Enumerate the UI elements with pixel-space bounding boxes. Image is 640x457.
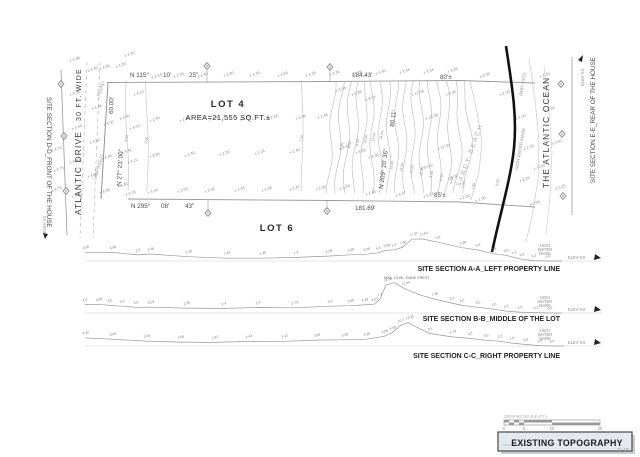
spot-elevation: x 4.40 xyxy=(223,70,235,78)
profile-elevation-label: 1.45 xyxy=(259,251,267,257)
profile-elevation-label: 2.47 xyxy=(281,334,289,340)
profile-elevation-label: 5.56 xyxy=(383,243,391,249)
spot-elevation: x 4.39 xyxy=(249,70,261,78)
profile-elevation-label: 5.2 xyxy=(449,296,455,301)
west-dimension: 60.00' xyxy=(108,97,116,114)
contour-label: 2.00 xyxy=(299,134,304,142)
section-profile-line xyxy=(85,283,562,313)
profile-elevation-label: 2.60 xyxy=(143,333,151,339)
section-aa-label: SITE SECTION A-A_LEFT PROPERTY LINE xyxy=(418,266,561,273)
monument-icon xyxy=(204,63,210,70)
scale-bar-segment xyxy=(524,420,552,423)
contour-line xyxy=(352,81,358,193)
profile-elevation-label: 4.79 xyxy=(449,329,457,335)
profile-elevation-label: 3.28 xyxy=(347,247,355,253)
spot-elevation: x 4.28 xyxy=(447,66,459,74)
monument-icon xyxy=(58,81,64,88)
east-dimension: 80.11' xyxy=(389,110,398,127)
north-bearing-min: 10' xyxy=(163,72,171,79)
spot-elevation: x 0.50 xyxy=(551,138,563,146)
spot-elevation: x 3.02 xyxy=(204,186,216,194)
spot-elevation: x 4.38 xyxy=(305,70,317,78)
profile-elevation-label: 2.4 xyxy=(221,301,227,306)
profile-elevation-label: 3.55 xyxy=(363,247,371,253)
contour-line xyxy=(146,81,149,191)
datum-arrow-icon xyxy=(594,339,601,345)
spot-elevation: x 4.44 xyxy=(399,67,411,75)
spot-elevation: x 12.08 xyxy=(411,88,425,97)
street-width: 30 FT. WIDE xyxy=(76,68,83,121)
profile-elevation-label: 0.0 xyxy=(547,306,553,311)
profile-elevation-label: 2.5 xyxy=(497,334,503,339)
profile-elevation-label: 4.50 xyxy=(109,245,117,251)
contour-line xyxy=(403,81,407,193)
spot-elevation: x 3.05 xyxy=(177,186,189,194)
spot-elevation: x 4.40 xyxy=(375,68,387,76)
north-bearing-sec: 25" xyxy=(189,72,198,79)
monument-icon xyxy=(324,208,330,215)
profile-elevation-label: 7.38 xyxy=(431,291,439,297)
contour-label: 0.00 xyxy=(495,178,500,186)
profile-elevation-label: 4.28 xyxy=(361,297,369,303)
spot-elevation: x 4.38 xyxy=(173,71,185,79)
scale-bar-segment xyxy=(519,423,524,426)
section-dd-cut-line xyxy=(61,70,67,235)
title-block: GRAPHIC SCALE (FT.) 0 5 10 20 EXISTING T… xyxy=(498,414,635,454)
spot-elevation: x 1.05 xyxy=(515,113,527,121)
profile-elevation-label: 0.2 xyxy=(531,253,537,258)
profile-elevation-label: 3.85 xyxy=(347,298,355,304)
profile-elevation-label: 4.56 xyxy=(82,245,90,251)
profile-elevation-label: 4.56 xyxy=(95,297,103,303)
profile-elevation-label: 3.60 xyxy=(109,332,117,338)
contour-label: 12.00 xyxy=(371,132,377,142)
scale-bar-segment xyxy=(509,423,514,426)
contour-label: 1.00 xyxy=(471,182,476,190)
datum-arrow-icon xyxy=(578,55,583,62)
spot-elevation: x 4.50 xyxy=(103,119,115,127)
lot6-label: LOT 6 xyxy=(260,223,294,234)
spot-elevation: x 3.28 xyxy=(423,191,435,199)
spot-elevation: x 3.44 xyxy=(261,185,273,193)
profile-elevation-label: 2.74 xyxy=(291,300,299,306)
spot-elevation: x 3.44 xyxy=(234,185,246,193)
profile-elevation-label: 3.09 xyxy=(313,332,321,338)
profile-elevation-label: 3.6 xyxy=(327,299,333,304)
contour-label: 8.00 xyxy=(429,170,434,178)
spot-elevation: x 4.56 xyxy=(99,187,111,195)
profile-elevation-label: 0.2 xyxy=(533,305,539,310)
elev-zero-note: ELEV 0.0 xyxy=(568,307,586,312)
profile-elevation-label: 11.63 xyxy=(419,231,428,237)
spot-elevation: x 4.20 xyxy=(133,89,145,97)
existing-topography-drawing: x 4.45x 4.46x 4.38x 4.44x 4.40x 4.60x 4.… xyxy=(0,0,640,457)
profile-elevation-label: 12.35 xyxy=(405,314,414,320)
profile-elevation-label: 3.8 xyxy=(491,247,497,252)
monument-icon xyxy=(559,131,565,138)
profile-elevation-label: 3.2 xyxy=(135,248,141,253)
spot-elevation: x 4.34 xyxy=(277,70,289,78)
street-name: ATLANTIC DRIVE xyxy=(73,131,83,215)
spot-elevation: x 12.05 xyxy=(437,142,451,151)
profile-elevation-label: 9.9 xyxy=(435,235,441,240)
profile-elevation-label: 4.0 xyxy=(467,331,473,336)
profile-elevation-label: 1.87 xyxy=(211,335,219,341)
profile-elevation-label: 3.0 xyxy=(503,248,509,253)
spot-elevation: x 4.36 xyxy=(99,63,111,71)
contour-line xyxy=(326,81,336,193)
elev-zero-left: ELEV 0.0 xyxy=(42,215,47,233)
monument-icon xyxy=(63,188,69,195)
spot-elevation: x 5.98 xyxy=(351,89,363,97)
spot-elevation: x 1.05 xyxy=(475,195,487,203)
graphic-scale-label: GRAPHIC SCALE (FT.) xyxy=(504,414,547,419)
spot-elevation: x 1.00 xyxy=(523,143,535,151)
elev-zero-note: ELEV 0.0 xyxy=(568,340,586,345)
spot-elevation: x 4.34 xyxy=(151,72,163,80)
spot-elevation: x 4.29 xyxy=(115,61,127,69)
spot-elevation: x 4.40 xyxy=(119,113,131,121)
spot-elevation: x 4.40 xyxy=(197,71,209,79)
section-dd-title: SITE SECTION D-D_FRONT OF THE HOUSE xyxy=(45,97,52,228)
spot-elevation: x 4.46 xyxy=(69,55,81,63)
spot-elevation: x 2.65 xyxy=(149,115,161,123)
contour-label: 4.00 xyxy=(449,176,454,184)
contour-line xyxy=(394,81,398,193)
profile-elevation-label: 1.49 xyxy=(223,251,231,257)
spot-elevation: x 14.08 xyxy=(425,112,439,121)
profile-elevation-label: 5.9 xyxy=(391,243,397,248)
monument-icon xyxy=(61,133,67,140)
profile-elevation-label: 4.4 xyxy=(82,297,88,302)
spot-elevation: x 3.50 xyxy=(147,187,159,195)
spot-elevation: x 3.06 xyxy=(315,184,327,192)
spot-elevation: x 2.05 xyxy=(499,89,511,97)
profile-elevation-label: 3.03 xyxy=(147,300,155,306)
profile-elevation-label: 2.05 xyxy=(177,334,185,340)
dune-crest-note: MAX. 15.95 - DUNE CREST xyxy=(384,276,430,280)
profile-elevation-label: 1.5 xyxy=(509,336,515,341)
monument-icon xyxy=(558,81,564,88)
monument-icon xyxy=(205,210,211,217)
profile-elevation-label: 4.3 xyxy=(375,246,381,251)
spot-elevation: x 4.08 xyxy=(479,71,491,79)
contour-line xyxy=(386,81,390,193)
contour-label: 10.00 xyxy=(363,134,369,144)
lot4-area: AREA=21,555 SQ.FT.± xyxy=(186,113,271,122)
profile-elevation-label: 3.66 xyxy=(147,246,155,252)
contour-line xyxy=(526,58,539,242)
spot-elevation: x 0.25 xyxy=(555,183,567,191)
scale-tick: 5 xyxy=(523,426,526,431)
profile-elevation-label: 10.7 xyxy=(397,318,405,324)
scale-bar-segment xyxy=(514,420,519,423)
contour-label: 15.00 xyxy=(389,160,395,170)
spot-elevation: x 8.00 xyxy=(368,152,380,160)
profile-elevation-label: 2.58 xyxy=(183,300,191,306)
south-bearing-sec: 43" xyxy=(185,203,194,210)
spot-elevation: x 2.30 xyxy=(219,149,231,157)
section-bb-label: SITE SECTION B-B_MIDDLE OF THE LOT xyxy=(423,316,561,323)
sheet-scale-note: 1"=10' xyxy=(618,447,630,452)
profile-elevation-label: 6.6 xyxy=(427,326,433,331)
spot-elevation: x 2.46 xyxy=(317,112,329,120)
ocean-label: THE ATLANTIC OCEAN xyxy=(541,77,551,188)
scale-tick: 20 xyxy=(598,426,603,431)
scale-tick: 0 xyxy=(503,426,506,431)
profile-elevation-label: 2.44 xyxy=(245,334,253,340)
spot-elevation: x 4.00 xyxy=(129,123,141,131)
profile-elevation-label: 3.0 xyxy=(133,300,139,305)
spot-elevation: x 2.46 xyxy=(295,113,307,121)
contour-line xyxy=(411,81,415,193)
spot-elevation: x 4.40 xyxy=(365,189,377,197)
datum-arrow-icon xyxy=(43,233,48,239)
north-beach-length: 80'± xyxy=(440,74,452,81)
section-ee-title: SITE SECTION E-E_REAR OF THE HOUSE xyxy=(590,57,597,183)
west-property-line xyxy=(101,82,108,199)
south-beach-length: 85'± xyxy=(434,192,446,199)
south-bearing-min: 08' xyxy=(161,203,169,210)
contour-label: 6.00 xyxy=(439,173,444,181)
profile-elevation-label: 5.8 xyxy=(475,243,481,248)
lot4-label: LOT 4 xyxy=(211,99,245,110)
section-cc-label: SITE SECTION C-C_RIGHT PROPERTY LINE xyxy=(413,353,560,360)
south-bearing-deg: N 295° xyxy=(131,202,151,210)
spot-elevation: x 4.10 xyxy=(127,157,139,165)
spot-elevation: x 4.44 xyxy=(71,123,83,131)
contour-label: 14.00 xyxy=(379,130,385,140)
monument-icon xyxy=(327,64,333,71)
site-section-bb: SITE SECTION B-B_MIDDLE OF THE LOT HIGH … xyxy=(82,276,602,323)
spot-elevation: x 4.45 xyxy=(124,50,136,58)
scale-bar-segment xyxy=(552,423,600,426)
spot-elevation: x 6.02 xyxy=(355,147,367,155)
sheet-title: EXISTING TOPOGRAPHY xyxy=(511,438,623,448)
spot-elevation: x 0.05 xyxy=(529,199,541,207)
profile-elevation-label: 1.0 xyxy=(503,304,509,309)
spot-elevation: x 4.48 xyxy=(91,103,103,111)
west-bearing: N 27° 23' 00" xyxy=(115,149,125,186)
scale-tick: 10 xyxy=(550,426,555,431)
profile-elevation-label: 0.0 xyxy=(549,339,555,344)
profile-elevation-label: 0.9 xyxy=(519,252,525,257)
profile-elevation-label: 7.2 xyxy=(377,292,383,297)
survey-sheet: x 4.45x 4.46x 4.38x 4.44x 4.40x 4.60x 4.… xyxy=(0,0,640,457)
spot-elevation: x 2.40 xyxy=(184,150,196,158)
sandy-beach-label: SANDY BEACH xyxy=(455,122,485,187)
contour-line xyxy=(343,81,351,193)
unpaved-label: UNPAVED xyxy=(92,154,106,180)
profile-elevation-label: 0.5 xyxy=(517,305,523,310)
profile-elevation-label: 2.9 xyxy=(255,300,261,305)
scale-bar-segment xyxy=(504,420,509,423)
spot-elevation: x 3.47 xyxy=(289,184,301,192)
contour-label: 14.00 xyxy=(399,162,405,172)
east-bearing: N 209° 20' 36" xyxy=(377,148,390,189)
profile-elevation-label: 3.28 xyxy=(341,332,349,338)
elev-zero-right: ELEV 0.0 xyxy=(580,68,585,86)
datum-arrow-icon xyxy=(594,254,601,260)
spot-elevation: x 4.37 xyxy=(395,190,407,198)
profile-elevation-label: 11.47 xyxy=(409,231,418,237)
spot-elevation: x 2.28 xyxy=(459,193,471,201)
contour-label: 6.00 xyxy=(347,140,352,148)
spot-elevation: x 4.75 xyxy=(53,165,65,173)
contour-label: 4.00 xyxy=(124,134,129,142)
spot-elevation: x 4.54 xyxy=(335,85,347,93)
datum-arrow-icon xyxy=(594,306,601,312)
contour-label: 8.00 xyxy=(355,138,360,146)
north-property-line xyxy=(107,81,535,84)
elev-zero-note: ELEV 0.0 xyxy=(568,255,586,260)
profile-elevation-label: 2.0 xyxy=(491,302,497,307)
profile-elevation-label: 2.58 xyxy=(325,248,333,254)
road-label: ROAD xyxy=(96,81,107,98)
profile-elevation-label: 6.98 xyxy=(459,240,467,246)
spot-elevation: x 2.34 xyxy=(254,148,266,156)
north-bearing-deg: N 115° xyxy=(130,71,149,79)
north-length: 184.43' xyxy=(352,72,372,79)
spot-elevation: x 2.40 xyxy=(289,147,301,155)
spot-elevation: x 4.34 xyxy=(423,67,435,75)
profile-elevation-label: 3.6 xyxy=(119,299,125,304)
monument-icon xyxy=(560,193,566,200)
profile-elevation-label: 3.0 xyxy=(483,333,489,338)
section-profile-line xyxy=(85,239,562,261)
profile-elevation-label: 4.26 xyxy=(82,330,90,336)
profile-elevation-label: 4.0 xyxy=(459,298,465,303)
south-length: 181.69' xyxy=(355,205,375,212)
contour-label: 12.00 xyxy=(409,164,415,174)
spot-elevation: x 2.60 xyxy=(149,151,161,159)
profile-elevation-label: 2.28 xyxy=(185,249,193,255)
contour-label: 10.00 xyxy=(419,166,425,176)
profile-elevation-label: 3.0 xyxy=(475,300,481,305)
profile-elevation-label: 12.99 xyxy=(401,280,410,286)
site-section-aa: SITE SECTION A-A_LEFT PROPERTY LINE HIGH… xyxy=(82,231,602,273)
spot-elevation: x 8.08 xyxy=(445,89,457,97)
profile-elevation-label: 0.8 xyxy=(523,337,529,342)
section-profile-line xyxy=(85,323,564,347)
high-water-mark-line xyxy=(492,46,515,252)
profile-elevation-label: 3.59 xyxy=(363,332,371,338)
spot-elevation: x 0.25 xyxy=(519,175,531,183)
spot-elevation: x 8.01 xyxy=(365,94,377,102)
spot-elevation: x 4.16 xyxy=(125,189,137,197)
profile-elevation-label: 4.0 xyxy=(107,298,113,303)
profile-elevation-label: 1.9 xyxy=(293,250,299,255)
profile-elevation-label: 5.06 xyxy=(381,329,389,335)
spot-elevation: x 4.52 xyxy=(89,137,101,145)
profile-elevation-label: 1.9 xyxy=(511,250,517,255)
spot-elevation: x 4.45 xyxy=(87,65,99,73)
water-line-date: (MAY 2022) xyxy=(518,72,527,97)
